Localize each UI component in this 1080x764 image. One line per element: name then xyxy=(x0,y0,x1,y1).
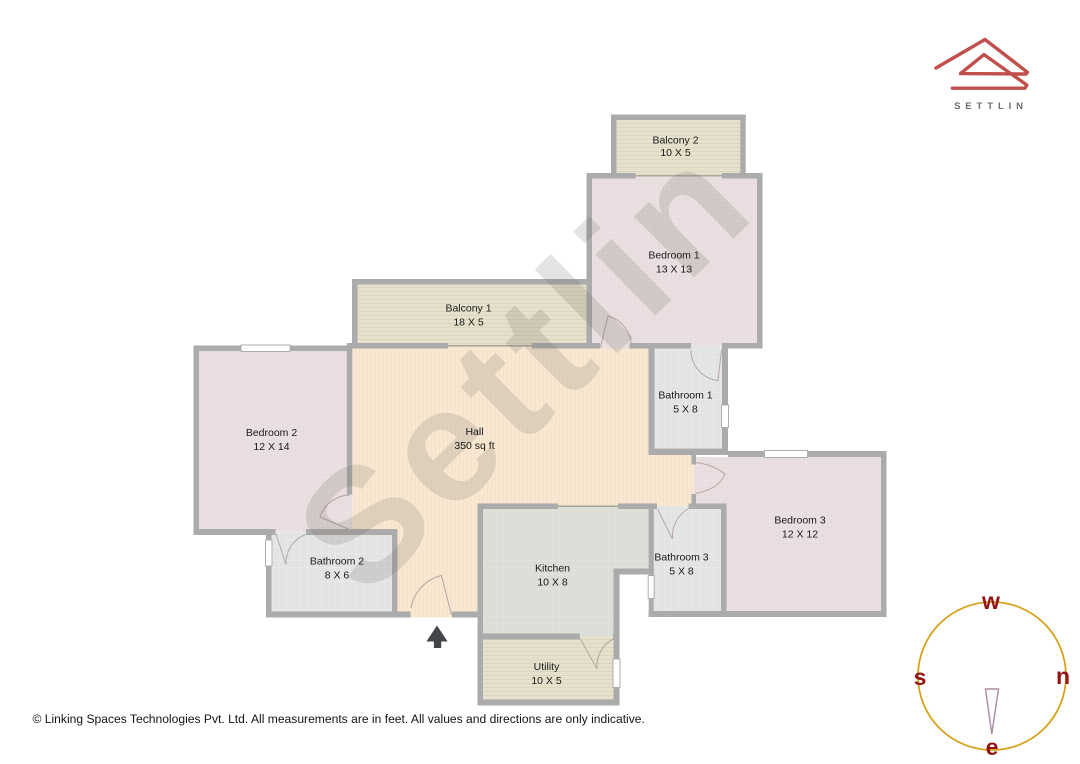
svg-text:SETTLIN: SETTLIN xyxy=(954,101,1028,112)
svg-text:Bedroom 3: Bedroom 3 xyxy=(774,515,826,527)
svg-text:Bedroom 2: Bedroom 2 xyxy=(246,427,298,439)
svg-text:18 X 5: 18 X 5 xyxy=(453,317,484,329)
svg-text:Kitchen: Kitchen xyxy=(535,563,570,575)
svg-text:n: n xyxy=(1056,663,1070,689)
svg-text:s: s xyxy=(914,664,927,690)
svg-text:Bedroom 1: Bedroom 1 xyxy=(648,250,700,262)
svg-text:10 X 8: 10 X 8 xyxy=(537,577,568,589)
svg-text:10 X 5: 10 X 5 xyxy=(660,147,691,159)
svg-text:© Linking Spaces Technologies: © Linking Spaces Technologies Pvt. Ltd. … xyxy=(33,712,645,726)
svg-text:5 X 8: 5 X 8 xyxy=(673,404,698,416)
svg-text:Bathroom 1: Bathroom 1 xyxy=(658,390,712,402)
svg-text:Balcony 1: Balcony 1 xyxy=(445,303,491,315)
svg-text:Balcony 2: Balcony 2 xyxy=(652,135,698,147)
svg-text:w: w xyxy=(981,588,1000,614)
svg-text:12 X 14: 12 X 14 xyxy=(253,441,289,453)
svg-text:Utility: Utility xyxy=(534,661,560,673)
svg-text:e: e xyxy=(986,734,999,760)
svg-text:12 X 12: 12 X 12 xyxy=(782,529,818,541)
svg-text:350 sq ft: 350 sq ft xyxy=(454,440,494,452)
svg-text:10 X 5: 10 X 5 xyxy=(531,675,562,687)
svg-text:8 X 6: 8 X 6 xyxy=(325,570,350,582)
svg-text:Bathroom 3: Bathroom 3 xyxy=(654,552,708,564)
svg-text:13 X 13: 13 X 13 xyxy=(656,264,692,276)
svg-text:Bathroom 2: Bathroom 2 xyxy=(310,556,364,568)
svg-text:5 X 8: 5 X 8 xyxy=(669,566,694,578)
svg-text:Hall: Hall xyxy=(465,426,483,438)
